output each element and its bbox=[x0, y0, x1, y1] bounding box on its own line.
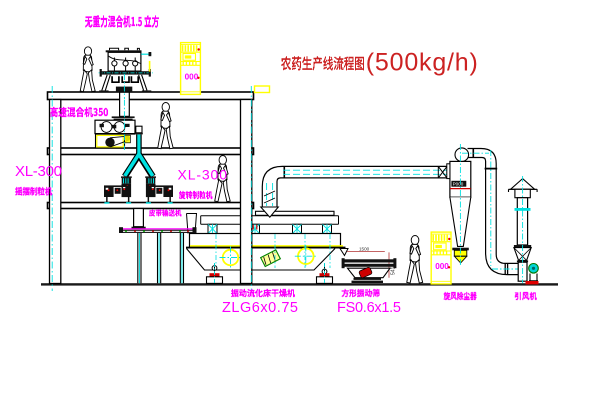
svg-text:P000: P000 bbox=[453, 182, 464, 187]
svg-text:ZLG6x0.75: ZLG6x0.75 bbox=[222, 300, 298, 316]
svg-text:XL-300: XL-300 bbox=[15, 163, 62, 180]
svg-text:FS0.6x1.5: FS0.6x1.5 bbox=[337, 300, 401, 316]
svg-text:1500: 1500 bbox=[359, 247, 370, 252]
svg-text:XL-300: XL-300 bbox=[178, 167, 228, 183]
svg-text:(500kg/h): (500kg/h) bbox=[366, 49, 478, 77]
